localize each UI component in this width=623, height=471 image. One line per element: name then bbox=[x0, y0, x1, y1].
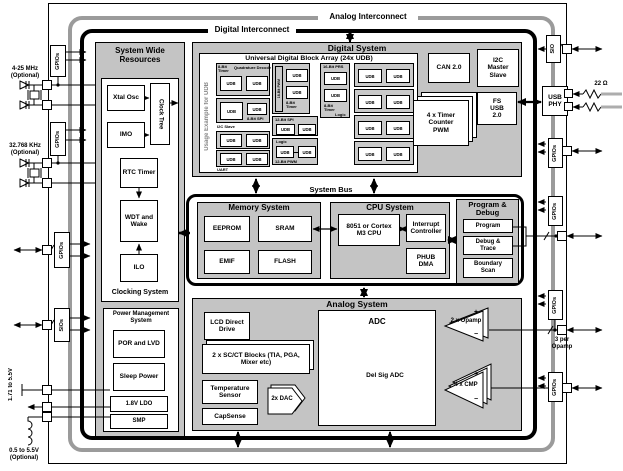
psoc-architecture-diagram: Analog Interconnect Digital Interconnect… bbox=[0, 0, 623, 471]
ilo-block: ILO bbox=[120, 254, 158, 282]
udb-block: UDB bbox=[246, 134, 268, 147]
udb-group-uart: UDB UDB bbox=[216, 150, 270, 167]
udb-tab-8bit-timer-3: 8-Bit Timer bbox=[324, 104, 340, 112]
khz-crystal-label: 32.768 KHz (Optional) bbox=[2, 143, 48, 156]
rtc-timer-block: RTC Timer bbox=[120, 158, 158, 188]
udb-block: UDB bbox=[220, 134, 242, 147]
left-sio-box: SIOs bbox=[54, 308, 70, 342]
boundary-scan-block: Boundary Scan bbox=[463, 258, 513, 278]
udb-block: UDB bbox=[386, 95, 410, 109]
udb-tab-8bit-timer: 8-Bit Timer bbox=[218, 65, 233, 73]
adc-label: ADC bbox=[318, 318, 436, 327]
ldo-block: 1.8V LDO bbox=[110, 396, 168, 412]
delsig-adc-label: Del Sig ADC bbox=[364, 372, 406, 379]
memory-system-title: Memory System bbox=[197, 204, 321, 213]
right-sio-box: SIO bbox=[546, 35, 561, 63]
left-gpio-box-2: GPIOs bbox=[50, 122, 66, 156]
udb-block: UDB bbox=[298, 146, 316, 158]
clock-tree-label: Clock Tree bbox=[157, 99, 164, 129]
cpu-system-title: CPU System bbox=[330, 204, 450, 213]
xtal-osc-block: Xtal Osc bbox=[107, 85, 145, 111]
udb-group-plain-r4: UDB UDB bbox=[354, 141, 414, 165]
xtal-pin-2 bbox=[42, 100, 52, 110]
right-gpio1-pin bbox=[562, 146, 572, 156]
opamp-minus: − bbox=[474, 331, 478, 338]
system-bus-label: System Bus bbox=[303, 186, 359, 194]
udb-block: UDB bbox=[246, 76, 268, 91]
cpu-core-block: 8051 or Cortex M3 CPU bbox=[338, 214, 400, 246]
dac-label: 2x DAC bbox=[267, 396, 297, 403]
udb-pwm16-strip: 16-Bit PWM bbox=[275, 66, 283, 112]
udb-block: UDB bbox=[358, 147, 382, 161]
cmp-plus: + bbox=[474, 371, 478, 378]
eeprom-block: EEPROM bbox=[204, 216, 250, 242]
por-lvd-block: POR and LVD bbox=[113, 330, 165, 358]
program-debug-title: Program & Debug bbox=[458, 201, 517, 218]
inductor-icon bbox=[28, 417, 32, 445]
right-gpio-box-3: GPIOs bbox=[548, 290, 563, 320]
vdd-range-label: 1.71 to 5.5V bbox=[8, 368, 14, 401]
udb-block: UDB bbox=[246, 153, 268, 165]
program-block: Program bbox=[463, 219, 513, 233]
smp-voltage-label: 0.5 to 5.5V (Optional) bbox=[2, 448, 46, 461]
lcd-direct-drive-block: LCD Direct Drive bbox=[204, 312, 250, 340]
udb-block: UDB bbox=[386, 147, 410, 161]
usb-resistor-icon bbox=[583, 90, 601, 98]
analog-interconnect-label: Analog Interconnect bbox=[318, 13, 418, 21]
can-block: CAN 2.0 bbox=[428, 53, 470, 83]
udb-block: UDB bbox=[247, 103, 267, 115]
opamp-label: 2 x Opamp bbox=[450, 318, 482, 325]
left-gpio3-pin bbox=[42, 245, 52, 255]
cmp-pin bbox=[562, 383, 572, 393]
usb-resistor-icon bbox=[583, 103, 601, 111]
udb-tab-logic-2: Logic bbox=[335, 113, 349, 117]
system-wide-resources-title: System Wide Resources bbox=[98, 47, 182, 65]
udb-block: UDB bbox=[324, 72, 347, 85]
udb-block: UDB bbox=[220, 153, 242, 165]
udb-tab-12bit-spi: 12-Bit SPI bbox=[275, 118, 301, 122]
udb-block: UDB bbox=[358, 69, 382, 83]
udb-group-pwm16: 16-Bit PWM UDB UDB 8-Bit Timer bbox=[272, 63, 310, 114]
udb-block: UDB bbox=[220, 76, 242, 91]
udb-block: UDB bbox=[286, 86, 308, 99]
udb-usage-sidebar: Usage Example for UDB bbox=[200, 62, 213, 170]
adc-box bbox=[318, 310, 436, 426]
sram-block: SRAM bbox=[258, 216, 312, 242]
udb-group-plain-r1: UDB UDB bbox=[354, 63, 414, 87]
left-gpio-3-label: GPIOs bbox=[59, 242, 65, 259]
usb-dm-pin bbox=[564, 102, 573, 111]
right-gpio-1-label: GPIOs bbox=[552, 145, 558, 162]
phub-dma-block: PHUB DMA bbox=[406, 248, 446, 274]
left-gpio-1-label: GPIOs bbox=[55, 53, 61, 70]
capsense-block: CapSense bbox=[202, 408, 258, 425]
flash-block: FLASH bbox=[258, 250, 312, 274]
cmp-minus: − bbox=[474, 396, 478, 403]
usb-resistor-label: 22 Ω bbox=[588, 81, 614, 88]
xtal-pin-1 bbox=[42, 80, 52, 90]
smp-pin bbox=[42, 412, 52, 422]
debug-bracket bbox=[513, 227, 526, 246]
interrupt-controller-block: Interrupt Controller bbox=[406, 214, 446, 242]
khz-pin-2 bbox=[42, 178, 52, 188]
udb-block: UDB bbox=[358, 121, 382, 135]
udb-group-plain-r3: UDB UDB bbox=[354, 115, 414, 139]
udb-tab-16bit-prs: 16-Bit PRS bbox=[323, 65, 350, 69]
right-gpio-box-2: GPIOs bbox=[548, 196, 563, 226]
opamp-per-pin-note: 3 per Opamp bbox=[544, 337, 580, 350]
left-gpio-box-1: GPIOs bbox=[50, 45, 66, 77]
left-gpio-box-3: GPIOs bbox=[54, 232, 70, 268]
udb-tab-8bit-spi: 8-Bit SPI bbox=[247, 117, 269, 121]
digital-system-title: Digital System bbox=[192, 44, 522, 53]
wdt-wake-block: WDT and Wake bbox=[120, 200, 158, 242]
udb-block: UDB bbox=[276, 124, 295, 135]
udb-block: UDB bbox=[276, 146, 294, 158]
udb-tab-i2c-slave: I2C Slave bbox=[217, 125, 243, 129]
imo-block: IMO bbox=[107, 122, 145, 148]
udb-block: UDB bbox=[358, 95, 382, 109]
khz-pin-1 bbox=[42, 158, 52, 168]
udb-usage-label: Usage Example for UDB bbox=[204, 82, 210, 151]
analog-system-title: Analog System bbox=[192, 300, 522, 309]
timer-counter-pwm-block: 4 x Timer Counter PWM bbox=[413, 100, 469, 146]
opamp-pin bbox=[557, 325, 567, 335]
fs-usb-block: FS USB 2.0 bbox=[477, 92, 517, 125]
vdd-range-label-wrap: 1.71 to 5.5V bbox=[2, 364, 20, 406]
i2c-master-slave-block: I2C Master Slave bbox=[477, 49, 519, 87]
smp-block: SMP bbox=[110, 414, 168, 429]
right-gpio-4-label: GPIOs bbox=[552, 379, 558, 396]
digital-interconnect-label: Digital Interconnect bbox=[208, 26, 296, 34]
right-sio-label: SIO bbox=[550, 44, 556, 53]
cmp-label: 4 x CMP bbox=[450, 382, 482, 389]
emif-block: EMIF bbox=[204, 250, 250, 274]
udb-group-logic-pwm12: Logic UDB UDB 12-Bit PWM bbox=[272, 138, 318, 165]
temperature-sensor-block: Temperature Sensor bbox=[202, 380, 258, 404]
udb-tab-16bit-pwm: 16-Bit PWM bbox=[277, 79, 281, 98]
udb-tab-quadrature-decoder: Quadrature Decoder bbox=[234, 66, 271, 70]
udb-tab-logic: Logic bbox=[276, 140, 292, 144]
left-sio-label: SIOs bbox=[59, 319, 65, 332]
udb-group-plain-left: UDB UDB bbox=[216, 131, 270, 149]
usb-dp-pin bbox=[564, 89, 573, 98]
vccd-pin bbox=[42, 402, 52, 412]
opamp-plus: + bbox=[474, 309, 478, 316]
udb-group-prs16: 16-Bit PRS UDB UDB 8-Bit Timer Logic bbox=[320, 63, 350, 118]
sleep-power-block: Sleep Power bbox=[113, 363, 165, 391]
debug-trace-block: Debug & Trace bbox=[463, 236, 513, 255]
vdd-pin bbox=[42, 385, 52, 395]
right-sio-pin bbox=[562, 44, 572, 54]
right-gpio-3-label: GPIOs bbox=[552, 297, 558, 314]
right-gpio-2-label: GPIOs bbox=[552, 203, 558, 220]
udb-tab-8bit-timer-2: 8-Bit Timer bbox=[286, 101, 302, 109]
udb-block: UDB bbox=[386, 121, 410, 135]
udb-block: UDB bbox=[286, 69, 308, 82]
left-gpio-2-label: GPIOs bbox=[55, 131, 61, 148]
mhz-crystal-label: 4-25 MHz (Optional) bbox=[4, 66, 46, 79]
udb-group-spi12: 12-Bit SPI UDB UDB bbox=[272, 116, 318, 136]
udb-group-spi8: UDB UDB 8-Bit SPI bbox=[216, 98, 270, 123]
left-sio-pin bbox=[42, 320, 52, 330]
udb-group-plain-r2: UDB UDB bbox=[354, 89, 414, 113]
right-gpio-box-1: GPIOs bbox=[548, 138, 563, 168]
scct-blocks-block: 2 x SC/CT Blocks (TIA, PGA, Mixer etc) bbox=[202, 344, 310, 374]
udb-block: UDB bbox=[324, 89, 347, 102]
udb-tab-12bit-pwm: 12-Bit PWM bbox=[275, 160, 303, 164]
right-gpio-box-4: GPIOs bbox=[548, 372, 563, 402]
udb-group-quadrature: 8-Bit Timer Quadrature Decoder UDB UDB bbox=[216, 63, 270, 96]
clocking-system-label: Clocking System bbox=[102, 289, 178, 297]
udb-block: UDB bbox=[220, 102, 243, 120]
udb-tab-uart: UART bbox=[217, 168, 237, 172]
jtag-pin bbox=[557, 231, 567, 241]
clock-tree-block: Clock Tree bbox=[150, 83, 170, 145]
power-management-title: Power Management System bbox=[105, 311, 177, 324]
udb-array-title: Universal Digital Block Array (24x UDB) bbox=[202, 55, 416, 62]
udb-block: UDB bbox=[298, 124, 316, 135]
udb-block: UDB bbox=[386, 69, 410, 83]
